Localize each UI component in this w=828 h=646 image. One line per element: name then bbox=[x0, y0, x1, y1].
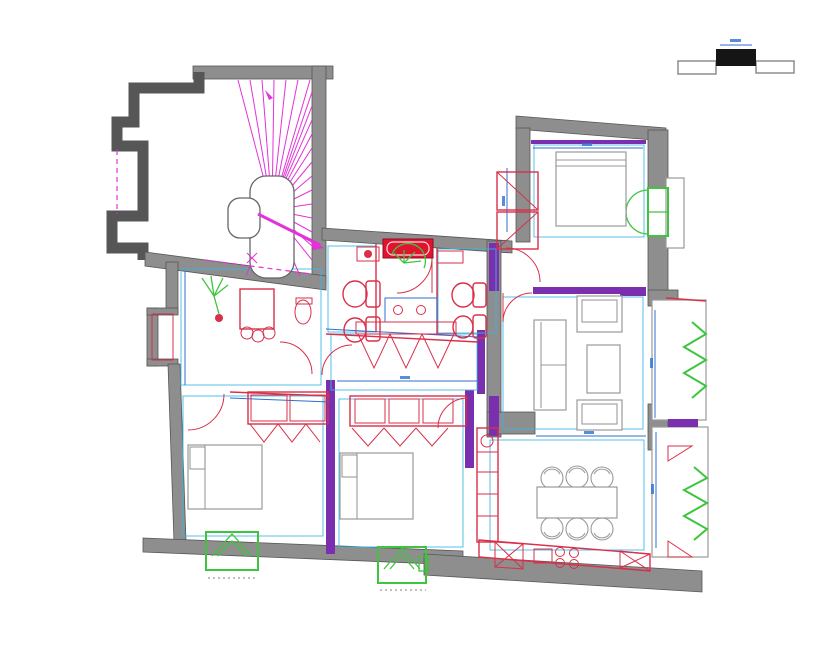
door-swing-arc bbox=[322, 345, 352, 375]
wardrobe-bedroom-2 bbox=[350, 396, 466, 446]
coffee-table bbox=[587, 345, 620, 393]
kitchen-tall-unit bbox=[477, 428, 498, 542]
wall-section-marker bbox=[678, 39, 794, 74]
bed-bedroom-2 bbox=[340, 453, 413, 519]
chair bbox=[541, 467, 563, 489]
chair bbox=[541, 517, 563, 539]
hall-red-marker bbox=[215, 314, 223, 322]
dining-set bbox=[537, 466, 617, 540]
bed-bedroom-1 bbox=[188, 445, 262, 509]
plant-hall bbox=[202, 276, 228, 314]
dining-table bbox=[537, 487, 617, 518]
chair bbox=[566, 466, 588, 488]
living-room-furniture bbox=[534, 296, 622, 430]
floor-plan-canvas bbox=[0, 0, 828, 646]
hall-console bbox=[295, 298, 312, 324]
chair bbox=[591, 467, 613, 489]
window-master-bedroom bbox=[626, 188, 668, 236]
bathroom-fixtures bbox=[383, 239, 486, 338]
floor-plan-page bbox=[0, 0, 828, 646]
washbasin-counter bbox=[385, 298, 437, 322]
sofa bbox=[534, 320, 566, 410]
door-swing-arc bbox=[397, 258, 432, 293]
toilet bbox=[343, 281, 380, 307]
balcony-slabs bbox=[652, 178, 708, 557]
armchair-top bbox=[577, 296, 622, 332]
bathtub bbox=[383, 239, 433, 258]
coat-closet-hall bbox=[240, 289, 275, 342]
section-marker-solid bbox=[716, 49, 756, 66]
door-swing-arc bbox=[188, 394, 224, 430]
door-swing-arc bbox=[280, 342, 312, 374]
bed-master bbox=[556, 152, 626, 226]
chair bbox=[591, 518, 613, 540]
armchair-bottom bbox=[577, 400, 622, 430]
chair bbox=[566, 518, 588, 540]
corridor-closet-valance bbox=[356, 322, 456, 368]
bidet bbox=[344, 317, 380, 342]
wc-room-fixtures bbox=[343, 247, 380, 342]
toilet bbox=[452, 283, 486, 307]
